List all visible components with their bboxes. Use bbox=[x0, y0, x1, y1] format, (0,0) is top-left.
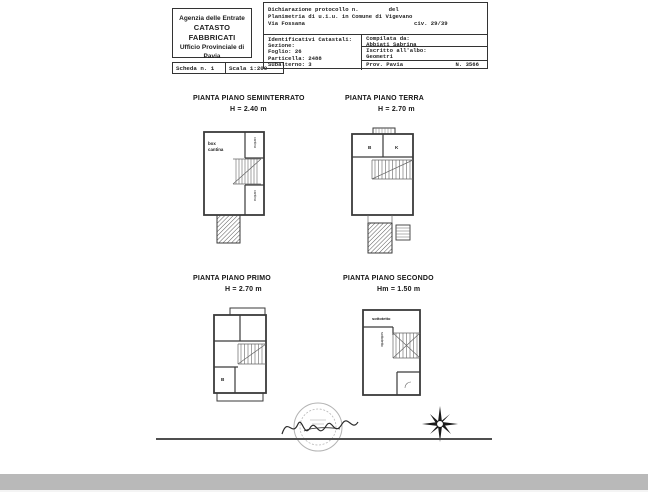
planimetria-line: Planimetria di u.i.u. in Comune di Vigev… bbox=[268, 13, 483, 20]
office-line4: Pavia bbox=[173, 52, 251, 61]
declaration-protocol-line: Dichiarazione protocollo n.del bbox=[268, 6, 483, 13]
sheet-bottom-edge bbox=[156, 438, 492, 440]
cadastral-document-page: Agenzia delle Entrate CATASTO FABBRICATI… bbox=[0, 0, 648, 492]
compiler-albo-row: Iscritto all'albo: Geometri bbox=[362, 47, 487, 61]
room-label-right-bottom: cantina bbox=[253, 190, 257, 201]
floorplan-seminterrato: box cantina cantina cantina bbox=[195, 122, 285, 250]
floorplan-primo: B bbox=[205, 300, 275, 412]
height-secondo: Hm = 1.50 m bbox=[377, 286, 420, 293]
albo-value: Geometri bbox=[366, 54, 487, 60]
title-secondo: PIANTA PIANO SECONDO bbox=[343, 275, 434, 282]
stamp-outer-circle bbox=[294, 403, 342, 451]
office-header-box: Agenzia delle Entrate CATASTO FABBRICATI… bbox=[172, 8, 252, 58]
stamp-inner-text-lines bbox=[310, 420, 326, 424]
room-label-box: box bbox=[208, 141, 216, 146]
title-terra: PIANTA PIANO TERRA bbox=[345, 95, 424, 102]
register-number: N. 3566 bbox=[456, 62, 480, 70]
attic-label-top: sottotetto bbox=[372, 316, 391, 321]
office-line3: Ufficio Provinciale di bbox=[173, 43, 251, 52]
civic-number: civ. 29/39 bbox=[414, 20, 448, 27]
room-label-right-top: cantina bbox=[253, 137, 257, 148]
height-primo: H = 2.70 m bbox=[225, 286, 262, 293]
room-label-b: B bbox=[368, 145, 372, 150]
height-seminterrato: H = 2.40 m bbox=[230, 106, 267, 113]
compiler-prov-row: Prov. Pavia N. 3566 bbox=[362, 61, 487, 70]
compiler-name-row: Compilata da: Abbiati Sabrina bbox=[362, 35, 487, 47]
external-steps-treads bbox=[396, 228, 410, 237]
protocol-label: Dichiarazione protocollo n. bbox=[268, 6, 359, 13]
declaration-top: Dichiarazione protocollo n.del Planimetr… bbox=[264, 3, 487, 34]
protocol-del-label: del bbox=[389, 6, 399, 13]
surveyor-stamp bbox=[278, 398, 363, 456]
attic-label-left: sottotetto bbox=[380, 332, 384, 347]
floorplan-terra: B K bbox=[340, 122, 435, 262]
secondo-walls bbox=[363, 327, 393, 335]
room-label-b: B bbox=[221, 377, 225, 382]
door-swing-icon bbox=[405, 382, 411, 388]
small-room-walls bbox=[397, 372, 420, 395]
compiler-info: Compilata da: Abbiati Sabrina Iscritto a… bbox=[362, 35, 487, 70]
catasto-subalterno: Subalterno: 3 bbox=[268, 62, 361, 68]
height-terra: H = 2.70 m bbox=[378, 106, 415, 113]
photo-bottom-band bbox=[0, 474, 648, 490]
declaration-bottom: Identificativi Catastali: Sezione: Fogli… bbox=[264, 34, 487, 70]
secondo-outline bbox=[363, 310, 420, 395]
office-line1: Agenzia delle Entrate bbox=[173, 14, 251, 23]
terra-walls bbox=[352, 134, 413, 157]
title-primo: PIANTA PIANO PRIMO bbox=[193, 275, 271, 282]
room-label-cantina: cantina bbox=[208, 147, 224, 152]
catasto-identifiers: Identificativi Catastali: Sezione: Fogli… bbox=[264, 35, 362, 70]
balcony-bottom bbox=[217, 393, 263, 401]
prov-label: Prov. Pavia bbox=[366, 62, 403, 70]
street-name: Via Fossana bbox=[268, 20, 305, 27]
courtyard-hatched-area bbox=[368, 223, 392, 253]
ramp-hatched-area bbox=[217, 215, 240, 243]
sheet-number: Scheda n. 1 bbox=[172, 62, 226, 74]
compass-center bbox=[437, 421, 444, 428]
declaration-box: Dichiarazione protocollo n.del Planimetr… bbox=[263, 2, 488, 69]
external-steps bbox=[396, 225, 410, 240]
office-line2: CATASTO FABBRICATI bbox=[173, 23, 251, 43]
street-line: Via Fossana civ. 29/39 bbox=[268, 20, 483, 27]
title-seminterrato: PIANTA PIANO SEMINTERRATO bbox=[193, 95, 305, 102]
courtyard-link-lines bbox=[368, 215, 392, 223]
balcony-top bbox=[230, 308, 265, 315]
room-label-k: K bbox=[395, 145, 399, 150]
floorplan-secondo: sottotetto sottotetto bbox=[345, 300, 435, 408]
compass-rose-icon bbox=[420, 402, 462, 448]
